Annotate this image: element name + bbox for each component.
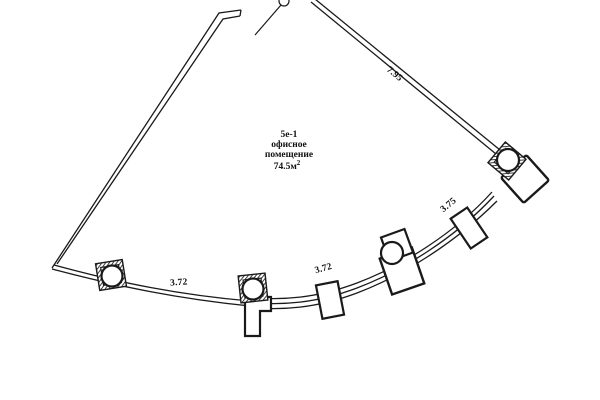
dimension-label-bottom-3: 3.75 [439, 196, 459, 215]
bottom-window-band [245, 192, 497, 309]
column-circle [243, 279, 264, 300]
room-name-line2: помещение [265, 150, 313, 160]
dimension-label-bottom-2: 3.72 [314, 262, 333, 276]
room-area-value: 74.5м [274, 162, 298, 172]
room-code: 5е-1 [281, 130, 298, 140]
room-label: 5е-1 офисное помещение 74.5м2 [265, 130, 313, 172]
column-circle [102, 266, 123, 287]
column-marker-2 [238, 273, 271, 336]
column-marker-1 [96, 260, 127, 291]
window-mullion-1 [316, 281, 344, 319]
column-circle [381, 242, 403, 264]
room-area-superscript: 2 [297, 159, 301, 167]
dimension-label-bottom-1: 3.72 [170, 277, 188, 288]
room-name-line1: офисное [271, 139, 306, 150]
window-mullion-2 [451, 207, 488, 248]
column-circle [497, 149, 519, 171]
left-wall [52, 10, 241, 268]
bottom-wall-left-segment [52, 265, 250, 306]
floor-plan-drawing: 7.95 3.72 3.72 3.75 5е-1 офисное помещен… [0, 0, 600, 400]
floor-plan-page: 7.95 3.72 3.72 3.75 5е-1 офисное помещен… [0, 0, 600, 400]
top-right-wall [311, 0, 500, 154]
column-marker-3 [380, 229, 425, 295]
leader-line [255, 0, 289, 35]
pier-leg [245, 297, 271, 336]
room-area: 74.5м2 [274, 159, 301, 172]
dimension-label-top-right-wall: 7.95 [384, 65, 404, 84]
column-marker-4 [488, 142, 549, 203]
